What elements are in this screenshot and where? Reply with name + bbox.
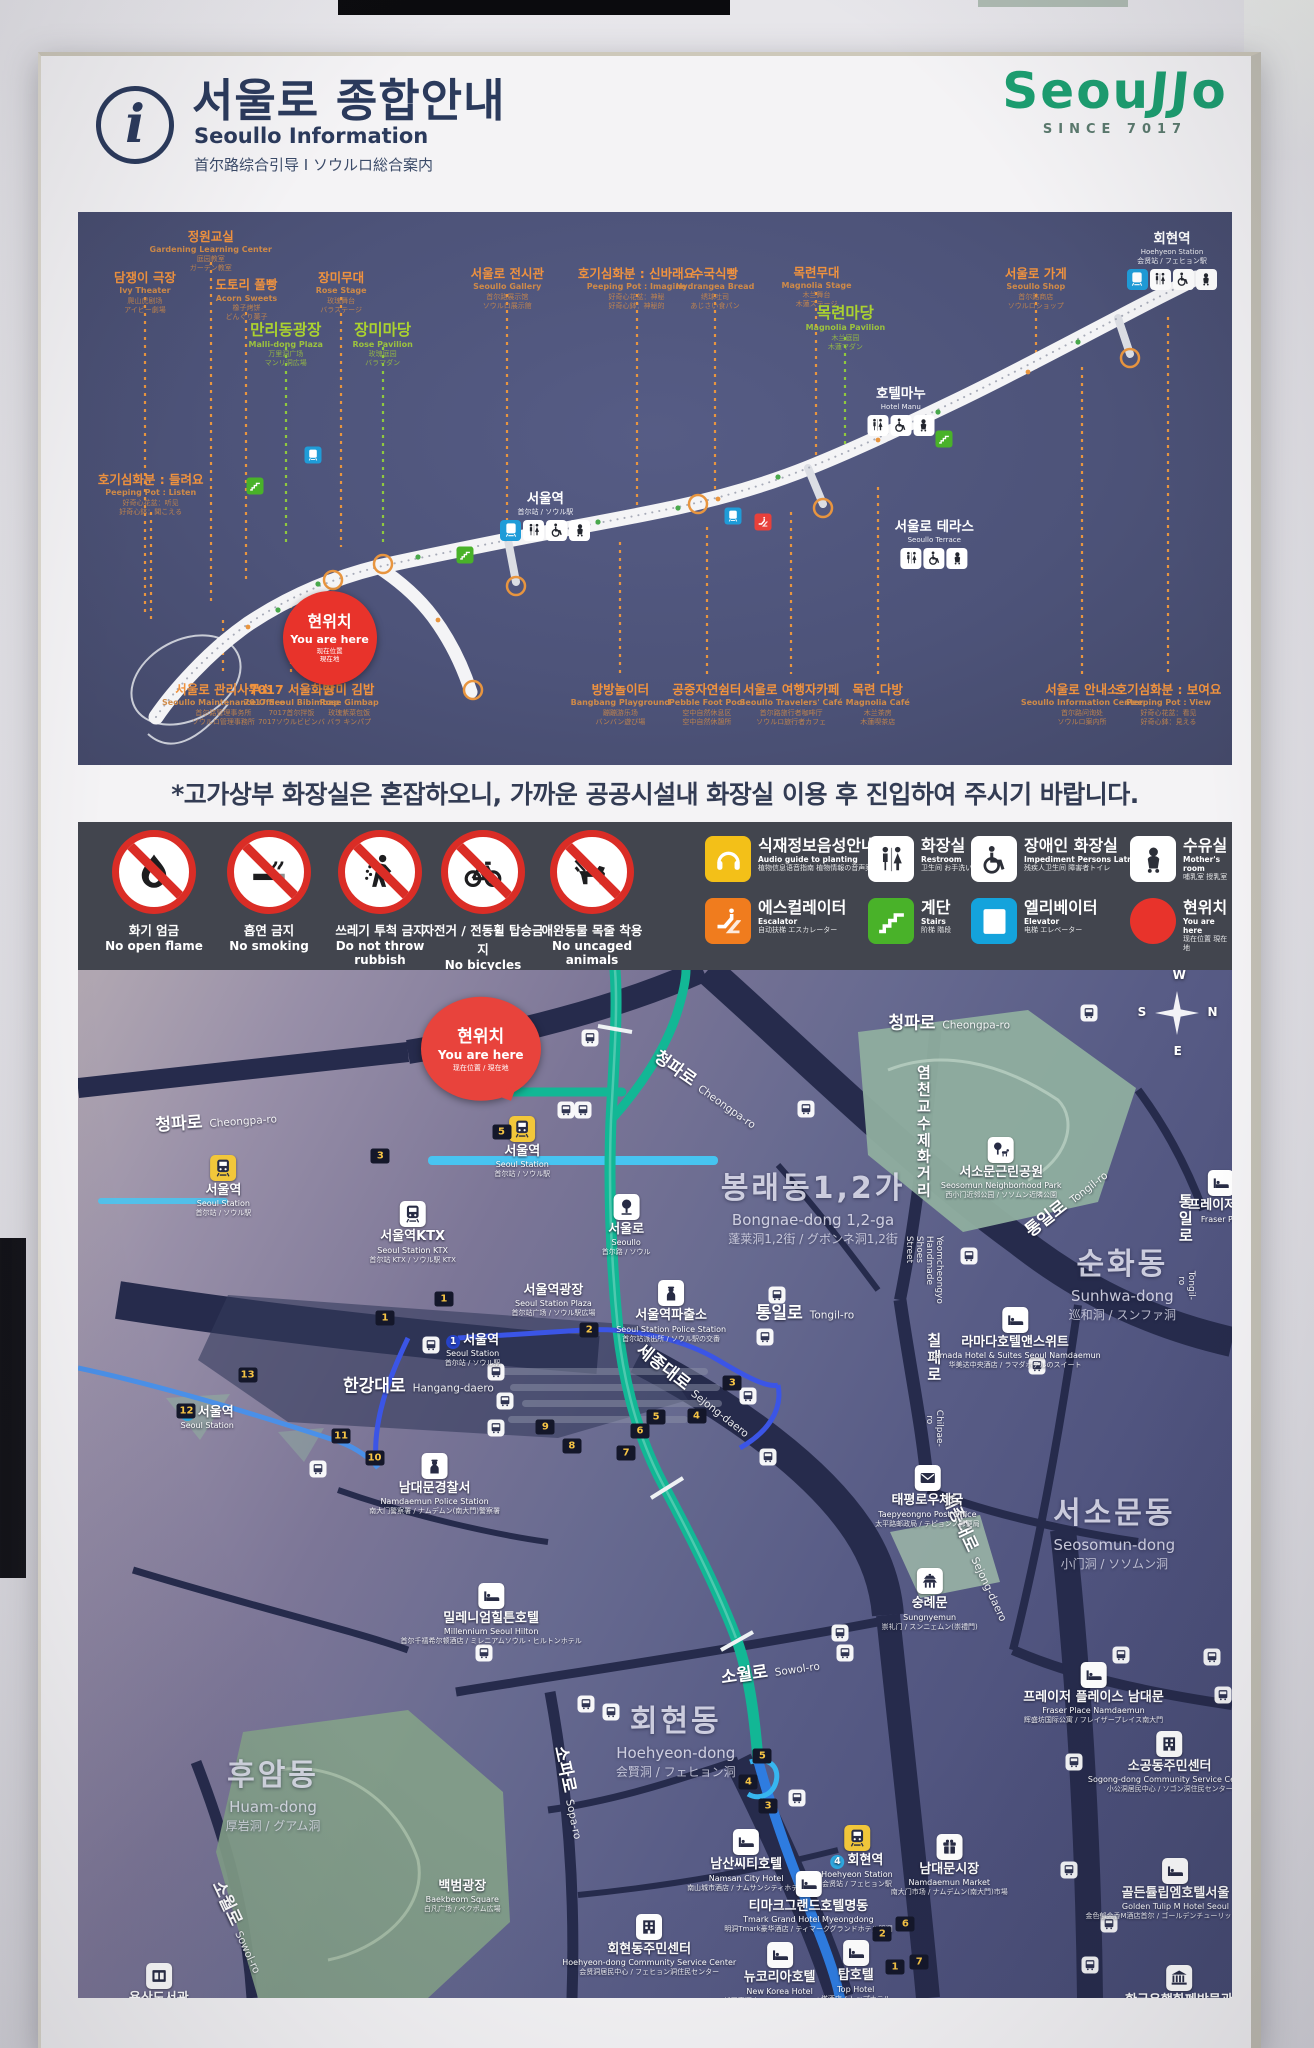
road-label-cheongpa-tl: 청파로Cheongpa-ro xyxy=(155,1102,278,1135)
topmap-label-line: Ivy Theater xyxy=(114,286,176,296)
baby-icon xyxy=(572,522,588,538)
bus-stop xyxy=(740,1387,757,1404)
restroom-icon-box xyxy=(867,415,888,436)
topmap-label-line: Rose Gimbap xyxy=(320,698,379,708)
library-icon-box xyxy=(146,1963,172,1989)
topmap-label-travelers-cafe: 서울로 여행자카페Seoullo Travelers' Café首尔路旅行者咖啡… xyxy=(740,682,843,727)
restroom-notice: *고가상부 화장실은 혼잡하오니, 가까운 공공시설내 화장실 이용 후 진입하… xyxy=(78,766,1232,820)
road-name-en: Sowol-ro xyxy=(774,1661,821,1679)
topmap-label-line: 空中自然休息区 xyxy=(669,709,745,718)
road-name-en: Sowol-ro xyxy=(232,1929,262,1975)
poi-name-ko: 소공동주민센터 xyxy=(1088,1759,1232,1775)
poi-name-ko: 서울역 xyxy=(494,1144,550,1160)
bus-stop xyxy=(837,1644,854,1661)
facility-label-en: Audio guide to planting xyxy=(758,855,879,864)
route-badge-13: 13 xyxy=(238,1368,257,1383)
bus-icon xyxy=(425,1339,438,1352)
bus-stop xyxy=(1080,1005,1097,1022)
route-badge-3: 3 xyxy=(371,1149,390,1164)
poi-name-sub: Taepyeongno Post Office xyxy=(875,1510,979,1520)
escalator-icon xyxy=(712,905,745,938)
topmap-label-line: 好奇心鉢：見える xyxy=(1116,718,1222,727)
topmap-label-pebble-foot-pool: 공중자연쉼터Pebble Foot Pool空中自然休息区空中自然休憩所 xyxy=(669,682,745,727)
topmap-label-line: 玫瑰庭园 xyxy=(352,350,412,359)
bus-icon xyxy=(489,1422,502,1435)
poi-sogong-center: 소공동주민센터Sogong-dong Community Service Cen… xyxy=(1088,1731,1232,1794)
accessible-restroom-icon-box xyxy=(971,836,1017,882)
park-icon xyxy=(991,1140,1011,1160)
poi-name-sub: Hoehyeon-dong Community Service Center xyxy=(562,1958,736,1968)
poi-namdaemun-police: 남대문경찰서Namdaemun Police Station南大门警察署 / ナ… xyxy=(369,1453,500,1516)
route-badge-6: 6 xyxy=(896,1916,915,1931)
road-name-en: Sopa-ro xyxy=(563,1799,583,1841)
topmap-group-title: 호텔마누 xyxy=(867,386,934,403)
bus-stop xyxy=(423,1337,440,1354)
topmap-label-line: 好奇心花盆：看见 xyxy=(1116,709,1222,718)
bus-icon xyxy=(605,1706,618,1719)
building-icon xyxy=(1160,1734,1180,1754)
topmap-label-line: バラマダン xyxy=(352,359,412,368)
district-name-sub: 小门洞 / ソソムン洞 xyxy=(1053,1556,1175,1573)
topmap-label-line: バラステージ xyxy=(316,306,367,315)
bus-stop xyxy=(603,1704,620,1721)
train-y-icon xyxy=(213,1158,233,1178)
bus-icon xyxy=(758,1330,771,1343)
poi-hilton: 밀레니엄힐튼호텔Millennium Seoul Hilton首尔千禧希尔顿酒店… xyxy=(400,1583,581,1646)
topmap-label-acorn-sweets: 도토리 풀빵Acorn Sweets橡子烤饼どんぐり菓子 xyxy=(216,277,278,322)
road-name-en: Cheongpa-ro xyxy=(695,1083,757,1132)
street-map-labels: 봉래동1,2가Bongnae-dong 1,2-ga蓬莱洞1,2街 / グボンネ… xyxy=(78,970,1232,1998)
compass-rose: WSNE xyxy=(1132,970,1222,1058)
bed-icon xyxy=(846,1943,866,1963)
wheelchair-icon-box xyxy=(924,548,945,569)
topmap-label-line: ソウルロ旅行者カフェ xyxy=(740,718,843,727)
prohibition-no-open-flame: 화기 엄금No open flame xyxy=(89,830,219,953)
facility-label-sub: 植物信息语音指南 植物情報の音声案内 xyxy=(758,864,879,872)
poi-name-ko: 서울역파출소 xyxy=(616,1308,726,1324)
road-name-en: Cheongpa-ro xyxy=(210,1113,278,1130)
poi-top-hotel: 탑호텔Top Hotel塔酒店 / トップホテル xyxy=(821,1940,891,1998)
poi-name-sub: Ramada Hotel & Suites Seoul Namdaemun xyxy=(929,1351,1100,1361)
topmap-label-rose-stage: 장미무대Rose Stage玫瑰舞台バラステージ xyxy=(316,270,367,315)
stairs-icon xyxy=(937,432,950,445)
district-name-sub: 厚岩洞 / グアム洞 xyxy=(226,1819,321,1836)
topmap-label-line: 木蓮喫茶店 xyxy=(846,718,910,727)
topmap-label-ivy-theater: 담쟁이 극장Ivy Theater爬山虎剧场アイビー劇場 xyxy=(114,270,176,315)
facility-label-ko: 에스컬레이터 xyxy=(758,898,846,917)
facility-label-en: Escalator xyxy=(758,917,846,926)
facility-label-sub: 哺乳室 授乳室 xyxy=(1183,873,1232,881)
poi-seoul-station-ktx: 서울역KTXSeoul Station KTX首尔站 KTX / ソウル駅 KT… xyxy=(369,1201,456,1264)
topmap-label-magnolia-pavilion: 목련마당Magnolia Pavilion木兰庭园木蓮マダン xyxy=(806,303,886,352)
page-title-en: Seoullo Information xyxy=(194,124,428,148)
district-name-ko: 회현동 xyxy=(616,1701,736,1743)
bus-icon xyxy=(800,1102,813,1115)
subway-line-4-chip: 4 xyxy=(830,1855,844,1869)
poi-fraser-place: 프레이저 플레이스 남대문Fraser Place Namdaemun辉盛坊国际… xyxy=(1023,1662,1164,1725)
district-name-en: Bongnae-dong 1,2-ga xyxy=(721,1211,906,1232)
topmap-label-line: 서울로 여행자카페 xyxy=(740,682,843,698)
restroom-icon xyxy=(870,417,886,433)
topmap-label-line: Bangbang Playground xyxy=(571,698,671,708)
streetmap-you-are-here: 현위치You are here现在位置 / 現在地 xyxy=(421,997,541,1101)
restroom-icon-box xyxy=(901,548,922,569)
topmap-label-line: Malli-dong Plaza xyxy=(249,340,323,350)
poi-name-sub: 首尔路 / ソウル xyxy=(602,1248,651,1257)
facility-label-ko: 화장실 xyxy=(921,836,972,855)
bus-stop xyxy=(1214,1686,1231,1703)
facility-text: 에스컬레이터Escalator自动扶梯 エスカレーター xyxy=(758,898,846,944)
gate-icon xyxy=(920,1571,940,1591)
topmap-subway-icon xyxy=(725,508,742,525)
topmap-label-line: Seoullo Gallery xyxy=(471,282,544,292)
bus-icon xyxy=(1115,1648,1128,1661)
topmap-label-line: 万里洞广场 xyxy=(249,350,323,359)
bus-stop xyxy=(1061,1861,1078,1878)
bus-icon xyxy=(742,1389,755,1402)
police-icon-box xyxy=(422,1453,448,1479)
bed-icon xyxy=(1084,1665,1104,1685)
page-title: 서울로 종합안내 xyxy=(192,64,505,129)
bed-icon-box xyxy=(767,1942,793,1968)
topmap-label-line: 서울로 전시관 xyxy=(471,266,544,282)
accessible-restroom-icon xyxy=(978,843,1011,876)
route-badge-12: 12 xyxy=(177,1404,196,1419)
poi-hoehyeon-center: 회현동주민센터Hoehyeon-dong Community Service C… xyxy=(562,1914,736,1977)
seoullo-logo: SeouJJo SINCE 7017 xyxy=(970,62,1260,137)
topmap-label-line: 도토리 풀빵 xyxy=(216,277,278,293)
road-name-ko: 청파로 xyxy=(155,1113,203,1136)
poi-name-sub: 首尔站 KTX / ソウル駅 KTX xyxy=(369,1256,456,1265)
bus-stop xyxy=(577,1695,594,1712)
poi-name-ko: 서소문근린공원 xyxy=(941,1165,1062,1181)
topmap-label-line: 장미무대 xyxy=(316,270,367,286)
poi-name-sub: Fraser Pla xyxy=(1188,1215,1232,1225)
route-badge-4: 4 xyxy=(687,1409,706,1424)
facility-elevator: 엘리베이터Elevator电梯 エレベーター xyxy=(971,898,1098,944)
facility-text: 화장실Restroom卫生间 お手洗い xyxy=(921,836,972,882)
topmap-label-peeping-pot-listen: 호기심화분 : 들려요Peeping Pot : Listen好奇心花盆：听见好… xyxy=(98,472,204,517)
facility-icon-row xyxy=(500,520,590,541)
topmap-label-line: あじさい食パン xyxy=(676,302,755,311)
topmap-you-are-here: 현위치You are here现在位置現在地 xyxy=(283,591,377,685)
road-label-sopa: 소파로Sopa-ro xyxy=(550,1744,594,1842)
bed-icon-box xyxy=(1002,1307,1028,1333)
bus-icon xyxy=(560,1103,573,1116)
facility-label-ko: 수유실 xyxy=(1183,836,1232,855)
restroom-icon-box xyxy=(868,836,914,882)
road-name-en: Hangang-daero xyxy=(413,1383,494,1395)
nursing-room-icon-box xyxy=(1130,836,1176,882)
poi-tmark-grand: 티마크그랜드호텔명동Tmark Grand Hotel Myeongdong明洞… xyxy=(724,1871,892,1934)
topmap-group-title: 서울로 테라스 xyxy=(895,519,974,536)
photo-artifact-dark-bar xyxy=(338,0,730,15)
restroom-icon-box xyxy=(1150,269,1171,290)
board-header: i 서울로 종합안내 Seoullo Information 首尔路综合引导 I… xyxy=(60,62,1220,212)
poi-name-sub: Namdaemun Market xyxy=(891,1878,1008,1888)
label: 현위치 xyxy=(457,1026,504,1048)
bed-icon xyxy=(798,1874,818,1894)
poi-line1-seoul-station: 1서울역Seoul Station首尔站 / ソウル駅 xyxy=(445,1333,501,1368)
facility-label-en: Mother's room xyxy=(1183,855,1232,873)
poi-name-ko: 백범광장 xyxy=(424,1879,501,1895)
topmap-label-magnolia-cafe: 목련 다방Magnolia Café木兰茶房木蓮喫茶店 xyxy=(846,682,910,727)
route-badge-5: 5 xyxy=(492,1125,511,1140)
topmap-label-line: アイビー劇場 xyxy=(114,306,176,315)
walkway-labels: 담쟁이 극장Ivy Theater爬山虎剧场アイビー劇場정원교실Gardenin… xyxy=(78,212,1232,765)
topmap-group-hoehyeon-station: 회현역Hoehyeon Station会贤站 / フェヒョン駅 xyxy=(1127,231,1217,289)
gift-icon xyxy=(939,1837,959,1857)
poi-yongsan-library: 용산도서관 xyxy=(129,1963,189,1998)
bus-stop xyxy=(788,1789,805,1806)
bus-icon xyxy=(1082,1007,1095,1020)
police-icon xyxy=(661,1283,681,1303)
poi-name-sub: 首尔站广场 / ソウル駅広場 xyxy=(512,1309,596,1318)
topmap-group-title: 회현역 xyxy=(1127,231,1217,248)
district-name-ko: 봉래동1,2가 xyxy=(721,1169,906,1211)
label: You are here xyxy=(438,1048,524,1064)
subway-icon xyxy=(503,522,519,538)
restroom-icon xyxy=(526,522,542,538)
topmap-label-line: 木蓮マダン xyxy=(806,343,886,352)
poi-name-ko: 회현동주민센터 xyxy=(562,1942,736,1958)
poi-name-sub: Seosomun Neighborhood Park xyxy=(941,1181,1062,1191)
prohibition-label-en: No uncaged animals xyxy=(527,939,657,967)
topmap-subway-icon xyxy=(305,447,322,464)
compass-left: S xyxy=(1138,1005,1147,1019)
topmap-label-line: 목련마당 xyxy=(806,303,886,323)
bus-stop xyxy=(1113,1646,1130,1663)
road-name-ko: 소파로 xyxy=(550,1745,579,1795)
building-icon-box xyxy=(636,1914,662,1940)
no-smoking-sign xyxy=(227,830,311,914)
photo-artifact-left-block xyxy=(0,1238,26,1578)
bus-icon xyxy=(762,1451,775,1464)
bus-stop xyxy=(769,1286,786,1303)
park-icon-box xyxy=(988,1137,1014,1163)
poi-baekbeom-square: 백범광장Baekbeom Square白凡广场 / ペクポム広場 xyxy=(424,1879,501,1914)
facility-label-ko: 현위치 xyxy=(1183,898,1232,917)
bus-icon xyxy=(584,1031,597,1044)
topmap-label-line: 庭园教室 xyxy=(150,255,272,264)
topmap-label-peeping-pot-view: 호기심화분 : 보여요Peeping Pot : View好奇心花盆：看见好奇心… xyxy=(1116,682,1222,727)
topmap-label-line: ガーデン教室 xyxy=(150,264,272,273)
facility-icon-row xyxy=(895,548,974,569)
tree-icon xyxy=(616,1197,636,1217)
poi-taepyeongno-post: 태평로우체국Taepyeongno Post Office太平路邮政局 / テピ… xyxy=(875,1465,979,1528)
facility-nursing-room: 수유실Mother's room哺乳室 授乳室 xyxy=(1130,836,1232,882)
topmap-group-sub: Seoullo Terrace xyxy=(895,536,974,545)
bus-stop xyxy=(310,1460,327,1477)
poi-name-sub: Seoul Station xyxy=(181,1421,234,1431)
poi-name-sub: 白凡广场 / ペクポム広場 xyxy=(424,1905,501,1914)
road-label-hangang: 한강대로Hangang-daero xyxy=(343,1372,494,1397)
facility-label-en: You are here xyxy=(1183,917,1232,935)
road-name-ko: 청파로 xyxy=(889,1014,936,1034)
district-huam: 후암동Huam-dong厚岩洞 / グアム洞 xyxy=(226,1756,321,1836)
elevator-icon xyxy=(978,905,1011,938)
post-icon xyxy=(917,1468,937,1488)
police-icon-box xyxy=(658,1280,684,1306)
road-name-en: Yeomcheongyo Handmade Shoes Street xyxy=(904,1236,944,1256)
topmap-label-line: ソウルロショップ xyxy=(1005,302,1067,311)
topmap-label-line: ソウルロ展示館 xyxy=(471,302,544,311)
bus-icon xyxy=(478,1646,491,1659)
poi-name-sub: Seoul Station xyxy=(494,1160,550,1170)
prohibition-label-ko: 화기 엄금 xyxy=(89,920,219,939)
facility-label-ko: 엘리베이터 xyxy=(1024,898,1098,917)
poi-seoullo: 서울로Seoullo首尔路 / ソウル xyxy=(602,1194,651,1257)
topmap-label-line: 绣球吐司 xyxy=(676,293,755,302)
bus-icon xyxy=(1084,1959,1097,1972)
bed-icon xyxy=(481,1586,501,1606)
topmap-label-line: Seoullo Shop xyxy=(1005,282,1067,292)
road-label-sowol: 소월로Sowol-ro xyxy=(720,1650,822,1689)
poi-new-korea-hotel: 뉴코리아호텔New Korea Hotel新国家酒店 / ニュー・コリアホテル xyxy=(724,1942,836,1998)
stairs-icon xyxy=(248,479,261,492)
topmap-label-line: マンリ洞広場 xyxy=(249,359,323,368)
road-label-cheongpa-diag: 청파로Cheongpa-ro xyxy=(650,1043,764,1133)
bus-stop xyxy=(756,1328,773,1345)
poi-name-sub: 南大门警察署 / ナムデムン(南大門)警察署 xyxy=(369,1507,500,1516)
elevator-icon-box xyxy=(971,898,1017,944)
road-label-cheongpa-tr: 청파로Cheongpa-ro xyxy=(889,1009,1011,1034)
topmap-label-line: 玫瑰舞台 xyxy=(316,297,367,306)
poi-sungnyemun: 숭례문Sungnyemun崇礼门 / スンニェムン(崇禮門) xyxy=(882,1568,978,1631)
route-badge-3: 3 xyxy=(723,1376,742,1391)
road-name-en: Cheongpa-ro xyxy=(942,1020,1010,1032)
poi-name-ko: 남대문경찰서 xyxy=(369,1481,500,1497)
district-hoehyeon: 회현동Hoehyeon-dong会賢洞 / フェヒョン洞 xyxy=(616,1701,736,1781)
train-y-icon-box xyxy=(844,1825,870,1851)
topmap-label-line: 首尔路展示馆 xyxy=(471,293,544,302)
label: 现在位置 / 現在地 xyxy=(453,1063,509,1072)
topmap-label-line: Seoullo Travelers' Café xyxy=(740,698,843,708)
poi-name-sub: 首尔站 / ソウル駅 xyxy=(445,1359,501,1368)
bus-icon xyxy=(1216,1688,1229,1701)
bus-stop xyxy=(960,1247,977,1264)
facility-audio-guide: 식재정보음성안내Audio guide to planting植物信息语音指南 … xyxy=(705,836,879,882)
route-badge-6: 6 xyxy=(630,1423,649,1438)
poi-name-sub: New Korea Hotel xyxy=(724,1987,836,1997)
topmap-label-line: 橡子烤饼 xyxy=(216,304,278,313)
topmap-stairs-icon xyxy=(246,477,263,494)
bus-stop xyxy=(831,1625,848,1642)
bus-stop xyxy=(1065,1753,1082,1770)
poi-golden-tulip: 골든튤립엠호텔서울Golden Tulip M Hotel Seoul金色郁金香… xyxy=(1086,1858,1232,1921)
gate-icon-box xyxy=(917,1568,943,1594)
poi-name-sub: Seoul Station xyxy=(195,1199,251,1209)
facility-label-sub: 自动扶梯 エスカレーター xyxy=(758,926,846,934)
facility-text: 식재정보음성안내Audio guide to planting植物信息语音指南 … xyxy=(758,836,879,882)
topmap-label-line: 호기심화분 : 들려요 xyxy=(98,472,204,488)
topmap-label-line: 호기심화분 : 보여요 xyxy=(1116,682,1222,698)
compass-right: N xyxy=(1208,1005,1218,1019)
facility-text: 계단Stairs阶梯 階段 xyxy=(921,898,951,944)
poi-name-ko: 남대문시장 xyxy=(891,1862,1008,1878)
wheelchair-icon xyxy=(1175,271,1191,287)
bus-icon xyxy=(833,1627,846,1640)
topmap-label-line: 好奇心鉢：聞こえる xyxy=(98,508,204,517)
district-name-ko: 서소문동 xyxy=(1053,1493,1175,1535)
poi-seoul-station-left: 서울역Seoul Station首尔站 / ソウル駅 xyxy=(195,1155,251,1218)
topmap-group-sub: Hoehyeon Station xyxy=(1127,248,1217,257)
poi-name-ko: 골든튤립엠호텔서울 xyxy=(1086,1886,1232,1902)
subway-icon xyxy=(727,510,740,523)
bed-icon xyxy=(1165,1861,1185,1881)
topmap-group-sub: Hotel Manu xyxy=(867,403,934,412)
poi-name-sub: Baekbeom Square xyxy=(424,1895,501,1905)
restroom-icon-box xyxy=(523,520,544,541)
wheelchair-icon-box xyxy=(890,415,911,436)
poi-name-sub: 金色郁金香M酒店首尔 / ゴールデンチューリップMホテル xyxy=(1086,1912,1232,1921)
topmap-label-rose-gimbap: 장미 김밥Rose Gimbap玫瑰紫菜包饭バラ キンパプ xyxy=(320,682,379,727)
subway-icon xyxy=(1129,271,1145,287)
subway-icon xyxy=(307,449,320,462)
poi-name-ko: 서울역광장 xyxy=(512,1283,596,1299)
bank-icon-box xyxy=(1166,1965,1192,1991)
topmap-stairs-icon xyxy=(935,430,952,447)
road-label-yeomcheongyo: 염천교수제화거리Yeomcheongyo Handmade Shoes Stre… xyxy=(914,1065,934,1266)
facility-label-ko: 식재정보음성안내 xyxy=(758,836,879,855)
poi-name-ko: 라마다호텔앤스위트 xyxy=(929,1335,1100,1351)
topmap-group-seoul-station: 서울역首尔站 / ソウル駅 xyxy=(500,491,590,541)
restroom-icon xyxy=(875,843,908,876)
bed-icon-box xyxy=(1081,1662,1107,1688)
route-badge-4: 4 xyxy=(739,1775,758,1790)
district-name-ko: 순화동 xyxy=(1069,1244,1176,1286)
facility-text: 수유실Mother's room哺乳室 授乳室 xyxy=(1183,836,1232,882)
bank-icon xyxy=(1169,1968,1189,1988)
bus-icon xyxy=(579,1697,592,1710)
road-name-en: Chilpae-ro xyxy=(924,1409,944,1429)
bus-icon xyxy=(498,1394,511,1407)
photo-of-seoullo-information-board: i 서울로 종합안내 Seoullo Information 首尔路综合引导 I… xyxy=(0,0,1314,2048)
facility-label-ko: 계단 xyxy=(921,898,951,917)
subway-line-1-chip: 1 xyxy=(446,1335,460,1349)
poi-name-sub: 首尔千禧希尔顿酒店 / ミレニアムソウル・ヒルトンホテル xyxy=(400,1637,581,1646)
label: 现在位置 xyxy=(317,647,343,655)
no-bicycles-sign xyxy=(441,830,525,914)
poi-name-sub: 首尔站 / ソウル駅 xyxy=(494,1170,550,1179)
topmap-label-line: 장미마당 xyxy=(352,320,412,340)
poi-name-sub: 会贤洞居民中心 / フェヒョン洞住民センター xyxy=(562,1968,736,1977)
legend-panel: 화기 엄금No open flame흡연 금지No smoking쓰레기 투척 … xyxy=(78,822,1232,970)
topmap-label-line: Magnolia Pavilion xyxy=(806,323,886,333)
poi-name-ko: 용산도서관 xyxy=(129,1991,189,1998)
topmap-stairs-icon xyxy=(456,546,473,563)
topmap-label-line: 목련 다방 xyxy=(846,682,910,698)
route-badge-2: 2 xyxy=(580,1322,599,1337)
train-y-icon-box xyxy=(509,1116,535,1142)
topmap-label-line: Peeping Pot : View xyxy=(1116,698,1222,708)
stairs-icon xyxy=(458,548,471,561)
route-badge-1: 1 xyxy=(375,1311,394,1326)
prohibition-label-ko: 애완동물 목줄 착용 xyxy=(527,920,657,939)
route-badge-7: 7 xyxy=(910,1955,929,1970)
route-badge-11: 11 xyxy=(332,1428,351,1443)
poi-name-sub: Millennium Seoul Hilton xyxy=(400,1627,581,1637)
facility-accessible-restroom: 장애인 화장실Impediment Persons Latrines残疾人卫生间… xyxy=(971,836,1148,882)
road-name-en: Tongil-ro xyxy=(1176,1271,1196,1291)
road-name-ko: 염천교수제화거리 xyxy=(914,1065,934,1199)
facility-label-sub: 卫生间 お手洗い xyxy=(921,864,972,872)
poi-name-ko: 서울역 xyxy=(195,1183,251,1199)
district-seosomun: 서소문동Seosomun-dong小门洞 / ソソムン洞 xyxy=(1053,1493,1175,1573)
bus-icon xyxy=(312,1462,325,1475)
poi-name-sub: Seoul Station Police Station xyxy=(616,1325,726,1335)
compass-top: W xyxy=(1173,970,1186,982)
